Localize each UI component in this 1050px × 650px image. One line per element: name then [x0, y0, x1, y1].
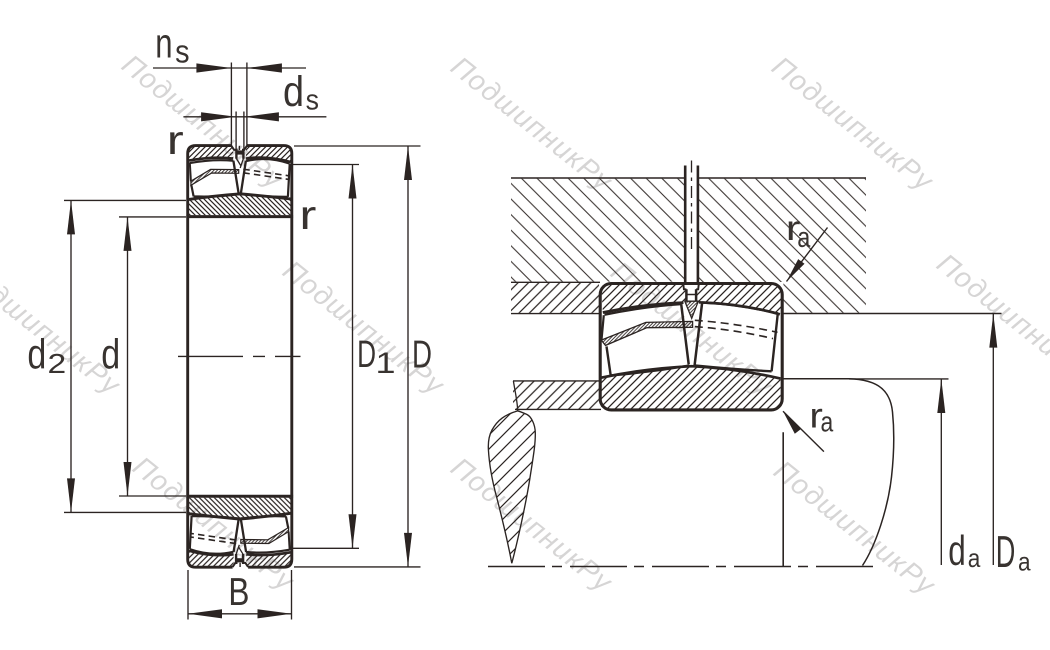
svg-text:ПодшипникРу: ПодшипникРу — [0, 254, 127, 401]
svg-text:ПодшипникРу: ПодшипникРу — [445, 50, 619, 197]
svg-text:D: D — [412, 333, 432, 377]
svg-text:n: n — [155, 20, 172, 67]
svg-text:ПодшипникРу: ПодшипникРу — [768, 454, 942, 601]
svg-text:a: a — [821, 405, 834, 438]
svg-text:ПодшипникРу: ПодшипникРу — [445, 451, 619, 598]
svg-text:B: B — [228, 571, 249, 614]
svg-text:D: D — [996, 527, 1016, 577]
svg-text:D: D — [357, 332, 376, 375]
svg-text:s: s — [306, 83, 319, 115]
svg-text:d: d — [101, 331, 120, 378]
svg-text:ПодшипникРу: ПодшипникРу — [277, 254, 451, 401]
svg-text:r: r — [299, 192, 316, 238]
svg-text:a: a — [968, 545, 981, 574]
svg-text:2: 2 — [48, 348, 67, 380]
svg-text:d: d — [948, 527, 966, 575]
svg-text:d: d — [283, 68, 304, 116]
svg-text:ПодшипникРу: ПодшипникРу — [931, 247, 1050, 394]
svg-text:d: d — [27, 331, 46, 378]
svg-text:a: a — [797, 220, 810, 253]
svg-text:1: 1 — [376, 347, 396, 380]
svg-text:s: s — [175, 34, 189, 70]
svg-text:ПодшипникРу: ПодшипникРу — [766, 50, 940, 197]
svg-text:a: a — [1018, 548, 1031, 577]
svg-text:ПодшипникРу: ПодшипникРу — [127, 450, 301, 597]
svg-text:r: r — [167, 117, 184, 163]
